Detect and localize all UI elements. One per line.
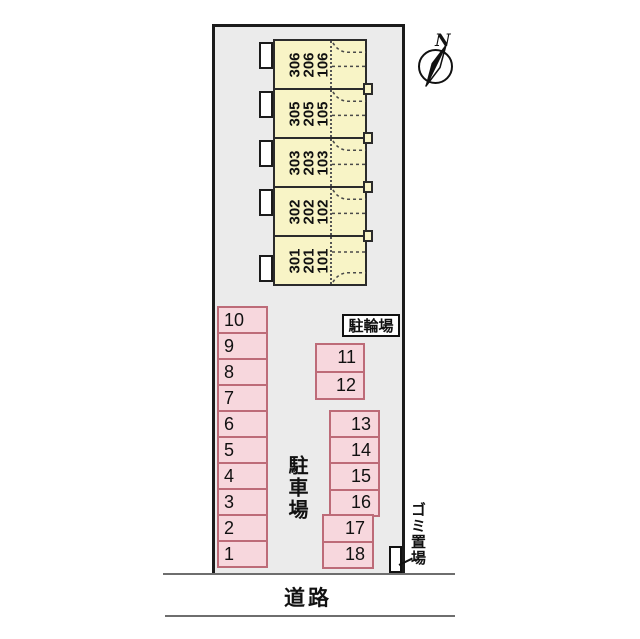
parking-space-number: 8 (224, 362, 234, 383)
parking-space-number: 4 (224, 466, 234, 487)
parking-space: 14 (329, 436, 380, 464)
parking-space-number: 1 (224, 544, 234, 565)
site-plan-canvas: 306 206 106 305 205 105 (0, 0, 640, 639)
parking-space: 6 (217, 410, 268, 438)
entrance-porch (259, 255, 273, 282)
parking-space: 9 (217, 332, 268, 360)
parking-left-column: 10 9 8 7 6 5 4 3 2 1 (217, 306, 268, 568)
parking-space: 3 (217, 488, 268, 516)
property-site: 306 206 106 305 205 105 (212, 24, 405, 573)
parking-space-number: 16 (351, 492, 371, 513)
entrance-porch (259, 140, 273, 167)
parking-space-number: 10 (224, 310, 244, 331)
balcony-partition-lines (332, 41, 367, 88)
compass-north-label: N (435, 31, 451, 51)
building-unit: 305 205 105 (273, 88, 367, 139)
parking-space: 11 (315, 343, 365, 373)
parking-space-number: 7 (224, 388, 234, 409)
building-step (363, 230, 373, 242)
balcony-partition-lines (332, 139, 367, 186)
bicycle-parking-label: 駐輪場 (348, 315, 393, 336)
building-step (363, 181, 373, 193)
parking-block-13-16: 13 14 15 16 (329, 410, 380, 517)
room-numbers: 306 206 106 (288, 41, 330, 88)
apartment-building: 306 206 106 305 205 105 (273, 39, 367, 286)
entrance-porch (259, 189, 273, 216)
parking-space: 2 (217, 514, 268, 542)
road-edge-line (163, 573, 455, 575)
road-edge-line (165, 615, 455, 617)
road-label: 道路 (268, 582, 348, 612)
parking-space: 18 (322, 541, 374, 570)
parking-space: 8 (217, 358, 268, 386)
balcony-partition-lines (332, 90, 367, 137)
room-number: 102 (315, 199, 332, 224)
parking-space: 7 (217, 384, 268, 412)
building-unit: 301 201 101 (273, 235, 367, 286)
parking-space-number: 14 (351, 440, 371, 461)
parking-space-number: 5 (224, 440, 234, 461)
parking-space-number: 15 (351, 466, 371, 487)
building-unit: 303 203 103 (273, 137, 367, 188)
parking-block-17-18: 17 18 (322, 514, 374, 569)
parking-space: 17 (322, 514, 374, 543)
garbage-station-box (389, 546, 402, 573)
entrance-porch (259, 91, 273, 118)
parking-space-number: 18 (345, 544, 365, 565)
room-number: 101 (315, 248, 332, 273)
parking-space-number: 6 (224, 414, 234, 435)
room-number: 106 (315, 52, 332, 77)
parking-space: 15 (329, 462, 380, 490)
room-numbers: 302 202 102 (288, 188, 330, 235)
parking-space: 16 (329, 489, 380, 517)
parking-space-number: 9 (224, 336, 234, 357)
garbage-area-label: ゴミ置場 (408, 502, 428, 577)
building-step (363, 132, 373, 144)
parking-space: 12 (315, 371, 365, 401)
parking-space-number: 13 (351, 414, 371, 435)
parking-block-11-12: 11 12 (315, 343, 365, 400)
car-parking-label: 駐車場 (287, 443, 311, 533)
room-numbers: 303 203 103 (288, 139, 330, 186)
parking-space: 13 (329, 410, 380, 438)
room-numbers: 301 201 101 (288, 237, 330, 284)
parking-space: 10 (217, 306, 268, 334)
parking-space-number: 12 (336, 375, 356, 396)
parking-space: 4 (217, 462, 268, 490)
building-unit: 306 206 106 (273, 39, 367, 90)
balcony-partition-lines (332, 237, 367, 284)
room-number: 103 (315, 150, 332, 175)
room-numbers: 305 205 105 (288, 90, 330, 137)
parking-space: 1 (217, 540, 268, 568)
parking-space-number: 11 (337, 347, 356, 368)
room-number: 105 (315, 101, 332, 126)
parking-space-number: 3 (224, 492, 234, 513)
entrance-porch (259, 42, 273, 69)
balcony-partition-lines (332, 188, 367, 235)
building-step (363, 83, 373, 95)
parking-space-number: 2 (224, 518, 234, 539)
parking-space-number: 17 (345, 518, 365, 539)
parking-space: 5 (217, 436, 268, 464)
bicycle-parking-label-box: 駐輪場 (342, 314, 400, 337)
building-unit: 302 202 102 (273, 186, 367, 237)
